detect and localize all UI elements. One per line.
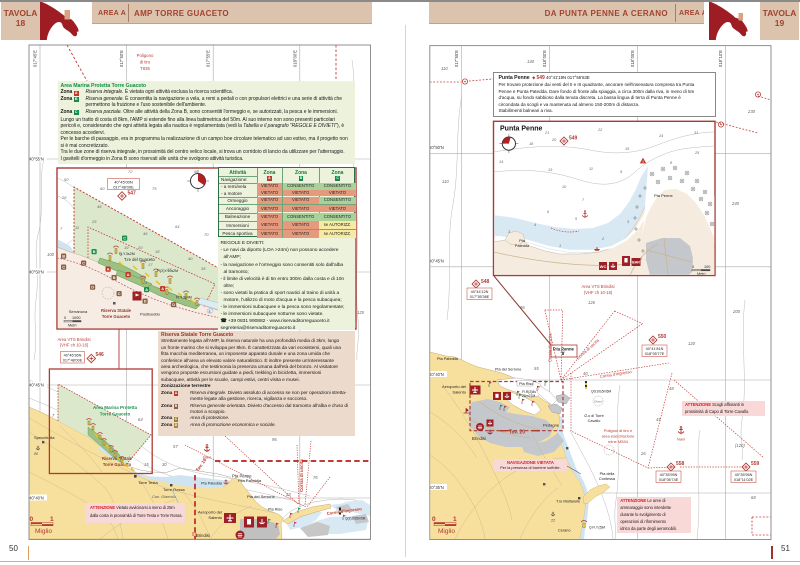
svg-text:A: A (107, 268, 110, 272)
svg-text:B: B (93, 250, 96, 254)
svg-text:017°48'00E: 017°48'00E (63, 359, 83, 363)
svg-text:Pta Penne: Pta Penne (654, 193, 673, 198)
svg-text:018°05'E: 018°05'E (630, 50, 635, 67)
svg-text:B: B (62, 255, 65, 259)
svg-text:Pta della: Pta della (600, 472, 616, 476)
svg-text:26: 26 (640, 451, 646, 456)
svg-text:Salento: Salento (452, 390, 466, 395)
svg-text:546: 546 (96, 352, 105, 358)
svg-text:WC: WC (600, 264, 607, 269)
svg-text:40°46'36N: 40°46'36N (64, 353, 82, 357)
svg-text:559: 559 (751, 461, 760, 467)
svg-text:Cavallo: Cavallo (588, 419, 601, 423)
svg-text:Pta: Pta (519, 239, 526, 243)
svg-text:Patedda: Patedda (515, 244, 530, 248)
svg-text:Poligono: Poligono (137, 53, 154, 58)
svg-text:40°50'N: 40°50'N (429, 145, 444, 150)
svg-text:88: 88 (34, 452, 38, 456)
svg-text:90: 90 (194, 169, 199, 174)
svg-text:100: 100 (704, 265, 710, 269)
svg-text:Aeroporto del: Aeroporto del (442, 384, 466, 389)
svg-text:1: 1 (50, 516, 54, 523)
svg-text:Contessa: Contessa (599, 477, 616, 481)
svg-text:549: 549 (569, 136, 578, 142)
svg-text:100: 100 (47, 252, 55, 257)
svg-text:46: 46 (143, 231, 148, 236)
svg-text:(120): (120) (735, 443, 745, 448)
svg-text:22: 22 (597, 128, 603, 132)
svg-text:96: 96 (272, 437, 277, 442)
svg-text:126: 126 (588, 300, 596, 305)
svg-text:Pta del Serrone: Pta del Serrone (495, 368, 521, 372)
svg-text:547: 547 (128, 191, 137, 197)
svg-text:40°45'N: 40°45'N (429, 259, 444, 264)
svg-text:96: 96 (520, 305, 525, 310)
svg-text:140: 140 (527, 59, 535, 64)
svg-text:Miglio: Miglio (438, 528, 455, 535)
svg-text:120: 120 (688, 341, 696, 346)
svg-text:mine M534: mine M534 (608, 439, 629, 444)
svg-text:40°35'95N: 40°35'95N (735, 473, 753, 477)
svg-text:T835: T835 (140, 66, 150, 71)
svg-text:11: 11 (589, 167, 593, 171)
svg-text:15: 15 (144, 462, 149, 467)
svg-text:Metri: Metri (68, 324, 77, 328)
svg-text:Brindisi: Brindisi (472, 436, 486, 441)
svg-text:Area VTS Brindisi: Area VTS Brindisi (57, 337, 90, 342)
svg-text:1: 1 (453, 516, 457, 523)
svg-text:Specchiolla: Specchiolla (34, 435, 55, 440)
svg-text:A: A (127, 273, 130, 277)
svg-text:QG10s5m5M: QG10s5m5M (591, 390, 611, 394)
svg-text:14: 14 (499, 160, 503, 164)
svg-text:017°55'E: 017°55'E (454, 50, 459, 67)
svg-text:018°00'E: 018°00'E (292, 50, 297, 67)
svg-text:Q.Fl.Y.(5)M: Q.Fl.Y.(5)M (589, 526, 605, 530)
svg-text:50: 50 (64, 177, 69, 182)
svg-text:Torre Guaceto: Torre Guaceto (100, 412, 131, 417)
svg-text:64: 64 (175, 224, 180, 229)
svg-text:C: C (62, 266, 65, 270)
svg-text:Salento: Salento (208, 515, 222, 520)
svg-text:35: 35 (201, 266, 206, 271)
svg-text:Pta Patedda: Pta Patedda (437, 357, 459, 361)
svg-text:70: 70 (204, 232, 209, 237)
svg-text:017°50'E: 017°50'E (119, 50, 124, 67)
svg-text:28m21M: 28m21M (522, 394, 535, 398)
svg-text:Torre Rossa: Torre Rossa (163, 487, 185, 492)
svg-text:Area Marina Protetta: Area Marina Protetta (93, 405, 138, 410)
svg-text:Punta Penne: Punta Penne (500, 126, 543, 133)
svg-text:Posticeddu: Posticeddu (140, 312, 160, 317)
svg-text:21: 21 (544, 131, 549, 135)
svg-text:110: 110 (442, 179, 449, 184)
svg-text:30: 30 (162, 462, 167, 467)
svg-text:Torre Guaceto: Torre Guaceto (102, 314, 131, 319)
svg-text:40°55'N: 40°55'N (29, 157, 44, 162)
svg-text:25: 25 (91, 219, 97, 224)
svg-text:018°00'E: 018°00'E (542, 50, 547, 67)
svg-text:40°41'81N: 40°41'81N (646, 347, 664, 351)
svg-text:018°10'E: 018°10'E (718, 50, 723, 67)
svg-text:Obstn: Obstn (594, 400, 602, 404)
svg-text:1: 1 (640, 257, 642, 261)
svg-text:19: 19 (124, 245, 129, 250)
svg-text:1: 1 (559, 244, 561, 248)
svg-text:25: 25 (694, 151, 700, 155)
svg-text:Fl.Y.3s2M: Fl.Y.3s2M (119, 252, 135, 256)
svg-text:0: 0 (432, 516, 436, 523)
svg-text:550: 550 (658, 334, 667, 340)
svg-text:40: 40 (583, 371, 588, 376)
svg-text:!: ! (642, 159, 643, 164)
svg-text:Pta del Serrone: Pta del Serrone (247, 494, 276, 499)
svg-text:D: D (172, 303, 175, 307)
svg-text:Miglio: Miglio (35, 528, 52, 535)
svg-text:Pedagne: Pedagne (543, 423, 560, 428)
svg-text:558: 558 (676, 461, 685, 467)
svg-text:230: 230 (747, 109, 756, 114)
svg-text:40°40'N: 40°40'N (29, 496, 44, 501)
svg-text:75: 75 (152, 186, 157, 191)
svg-text:Corsia di uscita: Corsia di uscita (299, 459, 304, 492)
svg-text:Poligoni di tiro e: Poligoni di tiro e (604, 428, 633, 433)
svg-text:Q(3)10s5m5M: Q(3)10s5m5M (345, 517, 366, 521)
svg-text:48: 48 (669, 386, 674, 391)
svg-text:018°05'77E: 018°05'77E (645, 352, 665, 356)
svg-text:Area VTS Brindisi: Area VTS Brindisi (581, 284, 614, 289)
svg-text:64: 64 (138, 417, 143, 422)
svg-text:0: 0 (692, 265, 694, 269)
svg-text:22: 22 (550, 519, 555, 523)
svg-text:40°40'N: 40°40'N (429, 372, 444, 377)
svg-text:018°11'02E: 018°11'02E (734, 478, 754, 482)
svg-text:E: E (209, 310, 211, 314)
svg-text:T.re del Guaceto: T.re del Guaceto (124, 257, 155, 262)
svg-text:Serranova: Serranova (69, 309, 88, 314)
svg-text:C: C (82, 262, 85, 266)
svg-text:Navi: Navi (677, 437, 685, 442)
svg-text:017°45'E: 017°45'E (33, 50, 38, 67)
svg-text:0: 0 (64, 316, 66, 320)
svg-text:72: 72 (128, 169, 133, 174)
svg-text:Brindisi: Brindisi (196, 533, 210, 538)
svg-text:A: A (161, 287, 164, 291)
svg-text:125: 125 (357, 310, 365, 315)
svg-text:548: 548 (481, 279, 490, 285)
svg-text:Can. Giancola: Can. Giancola (152, 495, 176, 499)
svg-text:200: 200 (732, 309, 741, 314)
svg-text:45: 45 (97, 204, 102, 209)
svg-text:C: C (123, 237, 126, 241)
svg-text:BAR: BAR (632, 261, 640, 265)
svg-text:40: 40 (188, 256, 193, 261)
svg-text:Pta Riso: Pta Riso (268, 508, 282, 512)
svg-text:Corsia di uscita: Corsia di uscita (548, 333, 553, 362)
svg-text:A: A (145, 288, 148, 292)
svg-text:40°50'N: 40°50'N (29, 270, 44, 275)
svg-text:017°48'00E: 017°48'00E (113, 184, 134, 189)
svg-text:017°55'38E: 017°55'38E (470, 295, 490, 299)
svg-text:20: 20 (551, 138, 557, 142)
svg-text:(VHF ch 10-16): (VHF ch 10-16) (60, 343, 89, 348)
svg-text:40°44'12N: 40°44'12N (471, 290, 489, 294)
svg-text:55: 55 (534, 366, 539, 371)
svg-text:P.ta Penne: P.ta Penne (553, 347, 575, 352)
svg-text:017°55'E: 017°55'E (206, 50, 211, 67)
svg-text:110: 110 (441, 66, 448, 71)
svg-text:76: 76 (313, 475, 318, 480)
svg-text:Riserva Statale: Riserva Statale (101, 308, 132, 313)
svg-text:Aeroporto del: Aeroporto del (198, 510, 222, 515)
svg-text:60: 60 (100, 186, 105, 191)
svg-text:24: 24 (658, 134, 663, 138)
svg-text:0: 0 (30, 516, 34, 523)
svg-text:40°35'N: 40°35'N (429, 485, 444, 490)
svg-text:68: 68 (751, 495, 756, 500)
svg-text:area esercitazione: area esercitazione (602, 434, 635, 439)
svg-text:33: 33 (286, 492, 291, 497)
svg-text:20: 20 (137, 245, 143, 250)
svg-text:Fl.Y.3s4M: Fl.Y.3s4M (176, 296, 192, 300)
svg-text:B: B (113, 276, 116, 280)
svg-text:26: 26 (61, 195, 67, 200)
svg-text:31: 31 (694, 131, 698, 135)
svg-text:18: 18 (155, 249, 160, 254)
svg-text:di tiro: di tiro (140, 60, 151, 65)
svg-text:1000: 1000 (72, 316, 80, 320)
svg-text:240: 240 (731, 201, 740, 206)
svg-text:11: 11 (75, 225, 79, 230)
svg-text:4: 4 (534, 223, 536, 227)
svg-text:Pta Riso: Pta Riso (519, 382, 533, 386)
svg-text:018°06'74E: 018°06'74E (659, 478, 679, 482)
svg-text:Tav. 20: Tav. 20 (509, 430, 525, 436)
svg-text:C: C (118, 292, 121, 296)
svg-text:40°45'N: 40°45'N (29, 383, 44, 388)
svg-text:D: D (91, 286, 94, 290)
svg-text:40°35'95N: 40°35'95N (660, 473, 678, 477)
svg-text:T.re Mattarelle: T.re Mattarelle (556, 500, 580, 504)
svg-text:(VHF ch 10-16): (VHF ch 10-16) (584, 290, 613, 295)
svg-text:D: D (144, 300, 147, 304)
svg-text:57: 57 (173, 444, 178, 449)
svg-text:Cerano: Cerano (558, 529, 570, 533)
svg-text:Torre Testa: Torre Testa (138, 480, 158, 485)
svg-text:Pta Patedda: Pta Patedda (201, 482, 223, 486)
svg-text:17: 17 (148, 262, 153, 267)
svg-text:C.o di Torre: C.o di Torre (584, 414, 604, 418)
svg-text:Fl(2)Y.10s2M: Fl(2)Y.10s2M (157, 269, 178, 273)
